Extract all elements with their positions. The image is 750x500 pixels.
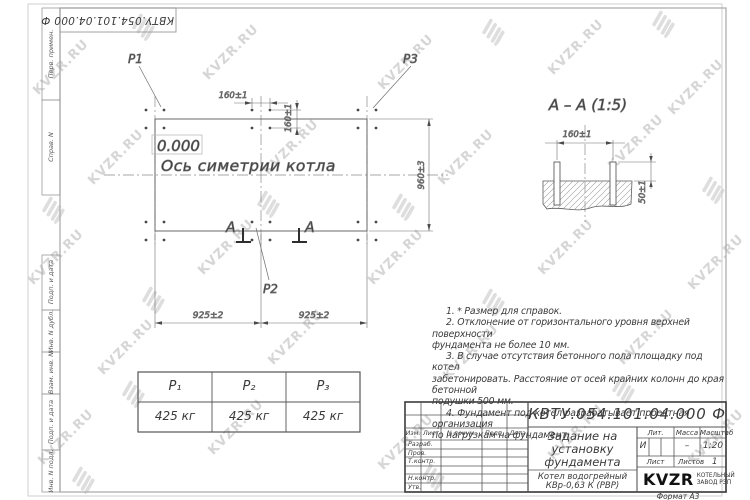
note-line: 3. В случае отсутствия бетонного пола пл… xyxy=(432,351,730,374)
tb-product-line: КВр-0,63 К (РВР) xyxy=(528,481,637,491)
bolt-left xyxy=(554,162,560,205)
plan-view: P1 P3 P2 0.000 Ось симетрии котла А А 16… xyxy=(104,52,585,328)
tb-doc-number: КВТУ.054.101.04.000 Ф xyxy=(528,405,726,423)
section-cut-marks xyxy=(236,228,307,242)
dim-right-v: 960±3 xyxy=(417,161,427,190)
logo-sub-line2: ЗАВОД РЭП xyxy=(697,480,735,487)
logo-sub-line1: КОТЕЛЬНЫЙ xyxy=(697,473,735,480)
section-view: А – А (1:5) 160±1 50±1 xyxy=(508,96,670,216)
tb-sheets-value: 1 xyxy=(712,457,717,467)
tb-row-label: Пров. xyxy=(408,450,426,457)
note-line: забетонировать. Расстояние от осей крайн… xyxy=(432,374,730,397)
tb-scale-value: 1:20 xyxy=(700,441,726,451)
sidebar-label: Перв. примен. xyxy=(45,14,57,94)
load-table-value: 425 кг xyxy=(286,409,360,423)
tb-col-header: N докум. xyxy=(441,430,482,437)
section-dim-height: 50±1 xyxy=(638,180,648,203)
tb-lit-label: Лит. xyxy=(637,429,674,437)
tb-title-line: установку xyxy=(528,442,637,456)
load-table-value: 425 кг xyxy=(212,409,286,423)
level-mark: 0.000 xyxy=(157,137,200,155)
sidebar-label: Справ. N xyxy=(45,107,57,187)
dim-bottom-left: 925±2 xyxy=(193,311,224,321)
dim-bottom-right: 925±2 xyxy=(299,311,330,321)
load-table-header: P₂ xyxy=(212,379,286,394)
label-p3: P3 xyxy=(403,52,418,66)
format-label: Формат А3 xyxy=(634,492,722,500)
axis-label: Ось симетрии котла xyxy=(161,157,336,175)
section-letter-left: А xyxy=(225,220,236,236)
tb-sheets-label: Листов xyxy=(678,458,704,466)
logo-text: KVZR xyxy=(643,470,694,489)
section-letter-right: А xyxy=(304,220,315,236)
load-table-header: P₁ xyxy=(138,379,212,394)
label-p1: P1 xyxy=(128,52,143,66)
tb-mass-value: – xyxy=(674,441,700,451)
tb-sheet-label: Лист xyxy=(637,458,674,466)
note-line: фундамента не более 10 мм. xyxy=(432,340,730,351)
drawing-sheet: KVZR.RU KVZR.RU KVZR.RU KVZR.RU KVZR.RU … xyxy=(0,0,750,500)
tb-scale-label: Масштаб xyxy=(700,429,726,437)
label-p2: P2 xyxy=(263,282,278,296)
load-table-value: 425 кг xyxy=(138,409,212,423)
dim-top-h: 160±1 xyxy=(219,91,248,101)
tb-row-label: Утв. xyxy=(408,484,421,491)
section-title: А – А (1:5) xyxy=(548,96,627,114)
tb-col-header: Дата xyxy=(507,430,528,437)
tb-lit-value: И xyxy=(637,441,649,451)
tb-row-label: Н.контр. xyxy=(408,475,436,482)
tb-col-header: Изм. xyxy=(405,430,421,437)
tb-title-line: Задание на xyxy=(528,429,637,443)
section-dim-width: 160±1 xyxy=(563,130,592,140)
company-logo: KVZR КОТЕЛЬНЫЙ ЗАВОД РЭП xyxy=(640,469,724,490)
sidebar-label: Инв. N подл. xyxy=(45,431,57,500)
note-line: 1. * Размер для справок. xyxy=(432,306,730,317)
note-line: 2. Отклонение от горизонтального уровня … xyxy=(432,317,730,340)
tb-mass-label: Масса xyxy=(674,429,700,437)
load-table-header: P₃ xyxy=(286,379,360,394)
tb-title-line: фундамента xyxy=(528,455,637,469)
tb-col-header: Подп. xyxy=(482,430,507,437)
bolt-right xyxy=(610,162,616,205)
tb-row-label: Т.контр. xyxy=(408,458,435,465)
tb-col-header: Лист xyxy=(421,430,441,437)
dim-top-v: 160±1 xyxy=(284,104,294,133)
corner-stamp-number: КВТУ.054.101.04.000 Ф xyxy=(62,10,174,30)
tb-row-label: Разраб. xyxy=(408,441,433,448)
